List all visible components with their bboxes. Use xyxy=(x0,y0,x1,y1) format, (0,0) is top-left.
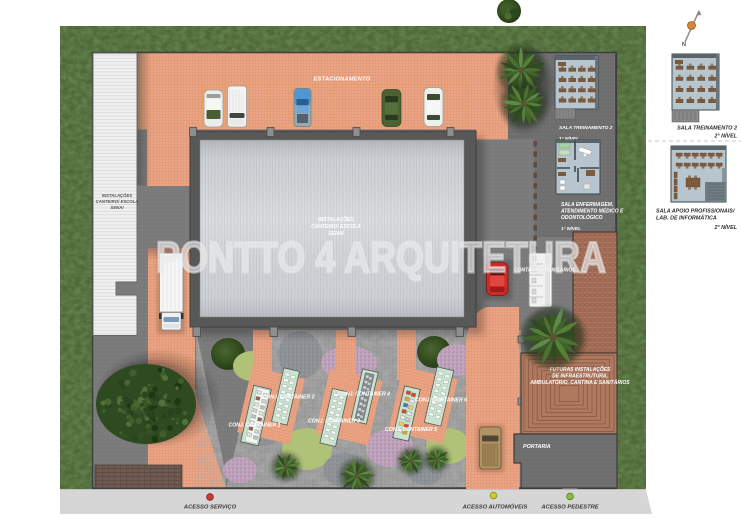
svg-text:N: N xyxy=(682,42,686,48)
svg-text:ESTACIONAMENTO: ESTACIONAMENTO xyxy=(314,77,371,83)
svg-text:LAB. DE INFORMÁTICA: LAB. DE INFORMÁTICA xyxy=(656,215,717,222)
svg-text:CONJ. CONTAINER 6: CONJ. CONTAINER 6 xyxy=(415,398,467,404)
svg-text:PORTARIA: PORTARIA xyxy=(523,444,551,450)
svg-text:AMBULATÓRIO, CANTINA E SANITÁR: AMBULATÓRIO, CANTINA E SANITÁRIOS xyxy=(529,379,630,386)
svg-text:INSTALAÇÕES: INSTALAÇÕES xyxy=(102,193,133,198)
svg-text:2° NÍVEL: 2° NÍVEL xyxy=(713,224,737,231)
svg-text:1° NÍVEL: 1° NÍVEL xyxy=(561,225,581,232)
svg-text:SALA ENFERMAGEM,: SALA ENFERMAGEM, xyxy=(561,202,613,208)
svg-text:PONTTO 4 ARQUITETURA: PONTTO 4 ARQUITETURA xyxy=(156,233,606,282)
svg-text:CONJ. CONTAINER 3: CONJ. CONTAINER 3 xyxy=(308,419,360,425)
svg-text:DE INFRAESTRUTURA,: DE INFRAESTRUTURA, xyxy=(552,374,608,380)
svg-text:2° NÍVEL: 2° NÍVEL xyxy=(713,133,737,140)
svg-text:ACESSO AUTOMÓVEIS: ACESSO AUTOMÓVEIS xyxy=(462,504,528,511)
svg-text:CONJ. CONTAINER 2: CONJ. CONTAINER 2 xyxy=(263,395,315,401)
svg-text:SALA TREINAMENTO 2: SALA TREINAMENTO 2 xyxy=(559,125,613,131)
svg-text:ODONTOLÓGICO: ODONTOLÓGICO xyxy=(561,214,603,221)
svg-text:SALA TREINAMENTO 2: SALA TREINAMENTO 2 xyxy=(677,126,737,132)
svg-text:CANTEIRO/ ESCOLA: CANTEIRO/ ESCOLA xyxy=(96,199,139,204)
svg-text:ACESSO SERVIÇO: ACESSO SERVIÇO xyxy=(183,505,237,511)
svg-text:CONJ. CONTAINER 4: CONJ. CONTAINER 4 xyxy=(338,392,390,398)
svg-text:CONJ. CONTAINER 1: CONJ. CONTAINER 1 xyxy=(229,423,281,429)
svg-text:SENAI: SENAI xyxy=(110,205,124,210)
svg-text:INSTALAÇÕES: INSTALAÇÕES xyxy=(318,216,354,223)
svg-text:ACESSO PEDESTRE: ACESSO PEDESTRE xyxy=(540,505,599,511)
svg-text:ATENDIMENTO MÉDICO E: ATENDIMENTO MÉDICO E xyxy=(560,207,624,215)
svg-text:CANTEIRO/ ESCOLA: CANTEIRO/ ESCOLA xyxy=(311,224,361,230)
svg-text:SALA APOIO PROFISSIONAIS/: SALA APOIO PROFISSIONAIS/ xyxy=(656,209,735,215)
svg-text:CONJ. CONTAINER 5: CONJ. CONTAINER 5 xyxy=(385,427,437,433)
